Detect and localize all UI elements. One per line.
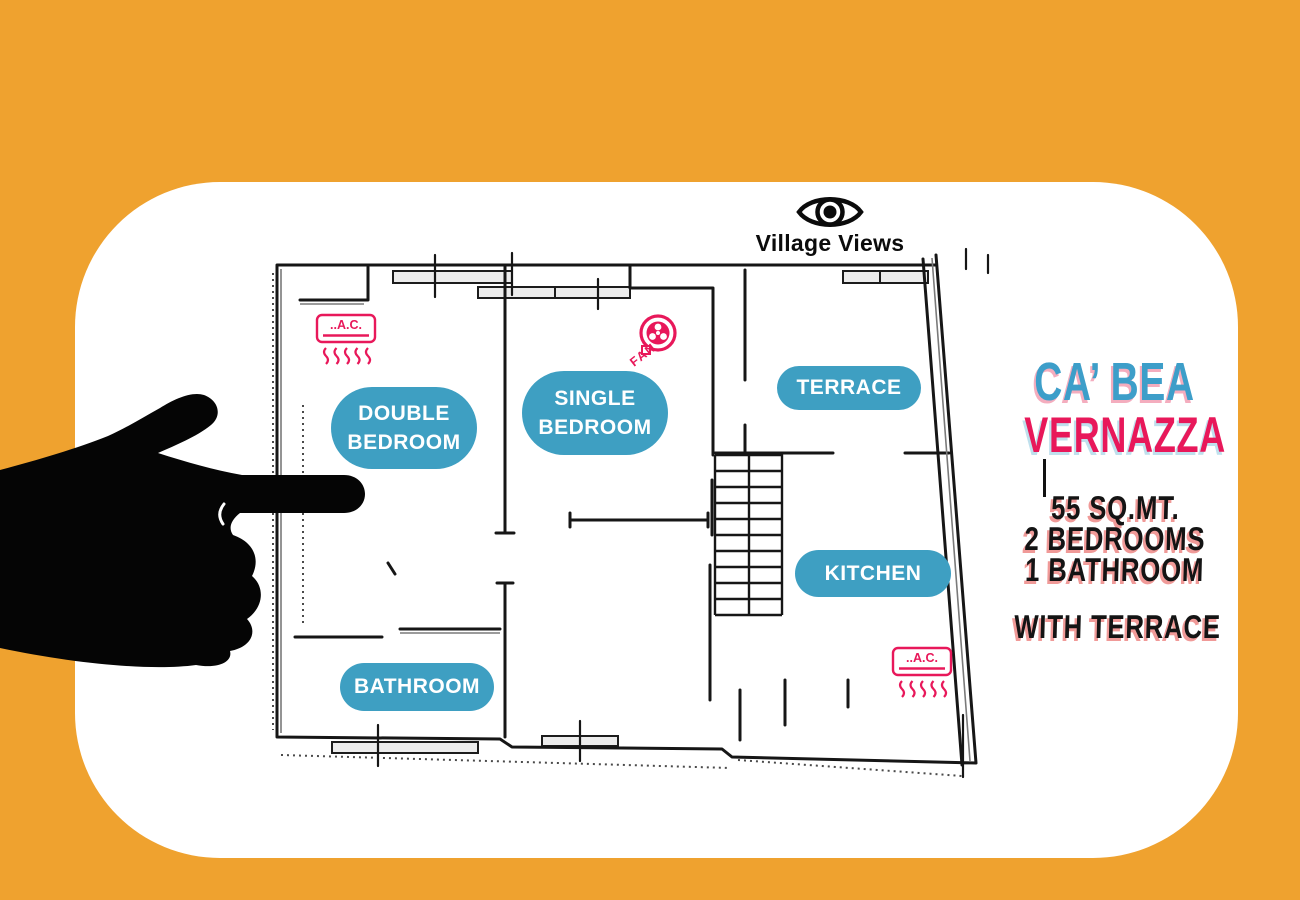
- room-label-terrace: TERRACE: [777, 366, 921, 410]
- room-label-line: TERRACE: [796, 377, 901, 399]
- listing-title-line1: CA’ BEA: [985, 356, 1245, 408]
- staircase: [715, 453, 782, 615]
- spec-bathrooms: 1 BATHROOM: [985, 554, 1245, 585]
- ceiling-fan-icon: FAN: [627, 316, 675, 369]
- plan-stray-line: [1043, 459, 1046, 497]
- spec-bedrooms: 2 BEDROOMS: [985, 523, 1245, 554]
- ac-unit-icon: ..A.C.: [317, 315, 375, 364]
- ac-label: ..A.C.: [906, 651, 938, 665]
- room-label-line: KITCHEN: [825, 563, 922, 585]
- listing-info-panel: CA’ BEA VERNAZZA 55 SQ.MT. 2 BEDROOMS 1 …: [985, 356, 1245, 642]
- room-label-line: SINGLE: [554, 384, 635, 413]
- listing-title-line2-text: VERNAZZA: [1024, 410, 1226, 460]
- room-label-kitchen: KITCHEN: [795, 550, 951, 597]
- flyer-canvas: ..A.C. ..A.C.: [0, 0, 1300, 900]
- listing-specs: 55 SQ.MT. 2 BEDROOMS 1 BATHROOM: [985, 492, 1245, 585]
- ac-unit-icon: ..A.C.: [893, 648, 951, 697]
- logo-name: Village Views: [740, 230, 920, 257]
- eye-icon: [796, 190, 864, 234]
- room-label-line: BATHROOM: [354, 676, 480, 698]
- ac-label: ..A.C.: [330, 318, 362, 332]
- listing-title-line1-text: CA’ BEA: [1035, 356, 1196, 408]
- listing-feature: WITH TERRACE: [985, 611, 1245, 642]
- room-label-single-bedroom: SINGLE BEDROOM: [522, 371, 668, 455]
- spec-size: 55 SQ.MT.: [985, 492, 1245, 523]
- room-label-line: BEDROOM: [538, 413, 651, 442]
- listing-title-line2: VERNAZZA: [985, 410, 1245, 460]
- pointing-hand-icon: [0, 388, 380, 678]
